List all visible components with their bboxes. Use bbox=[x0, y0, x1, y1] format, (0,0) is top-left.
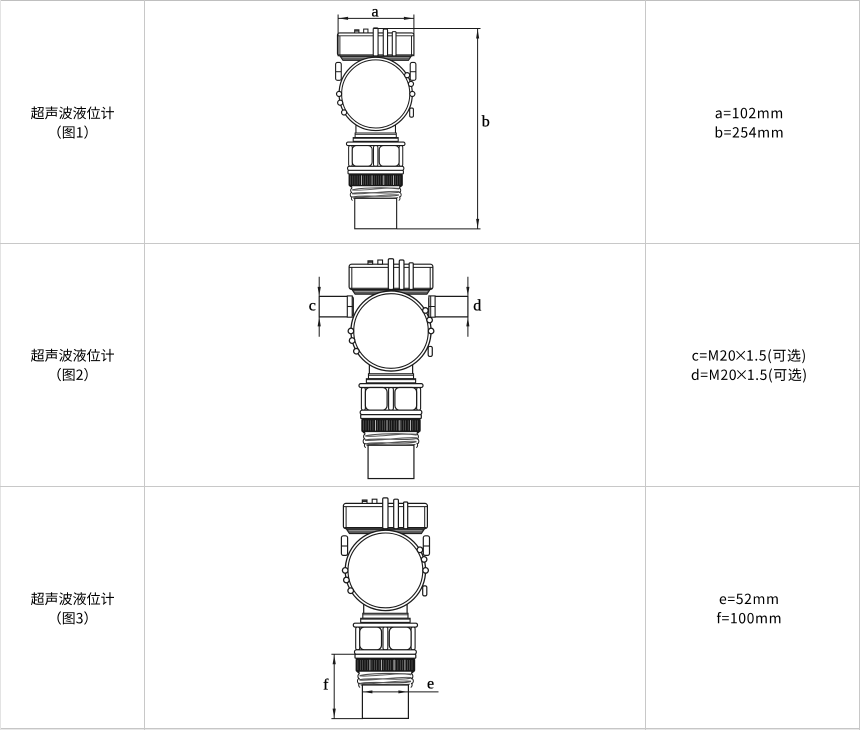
svg-text:c: c bbox=[309, 298, 316, 315]
svg-text:d: d bbox=[473, 298, 481, 315]
svg-text:e: e bbox=[427, 676, 434, 693]
svg-text:f: f bbox=[323, 677, 329, 694]
svg-text:b: b bbox=[482, 113, 490, 130]
svg-text:a: a bbox=[371, 3, 378, 20]
